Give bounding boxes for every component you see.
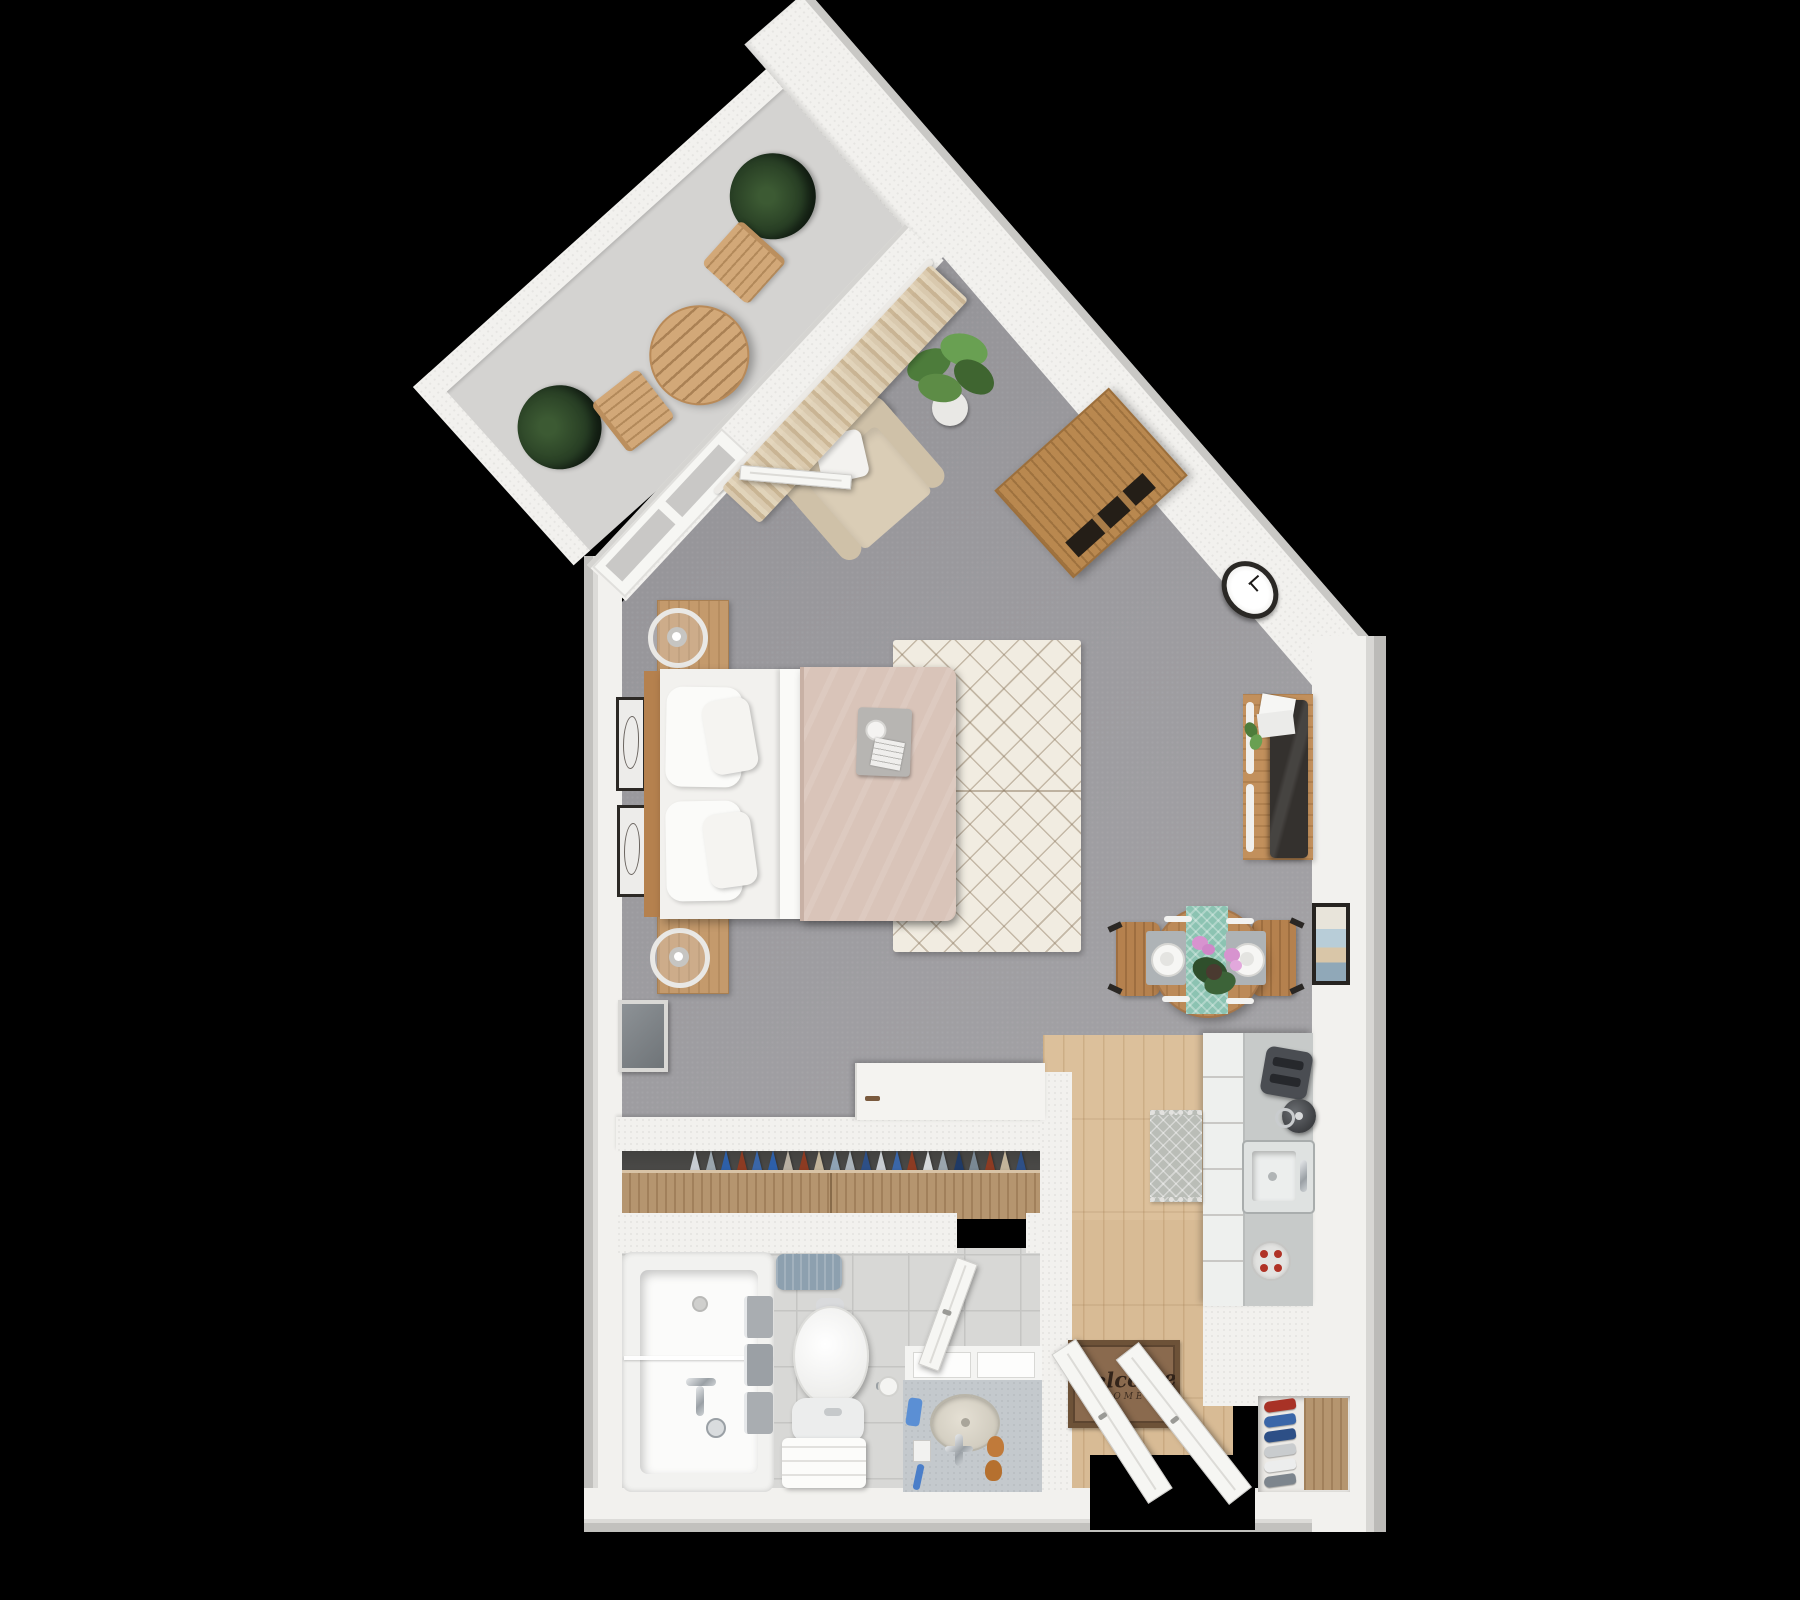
wall-closet-top: [616, 1117, 1043, 1151]
shoe-pair: [1263, 1398, 1296, 1413]
white-dresser: [855, 1063, 1045, 1120]
amber-cup-2: [985, 1460, 1002, 1481]
tub-drain: [692, 1296, 708, 1312]
dresser-handle: [865, 1096, 880, 1101]
vanity: [903, 1346, 1042, 1492]
shoe-shelf: [1304, 1398, 1348, 1490]
closet-dresser: [620, 1170, 1040, 1219]
lamp-bottom-icon: [650, 928, 710, 988]
handheld-shower-icon: [706, 1418, 726, 1438]
toaster-icon: [1259, 1045, 1314, 1100]
toilet-paper-holder-icon: [876, 1372, 898, 1400]
duvet: [800, 667, 956, 921]
shoe-pair: [1263, 1443, 1296, 1458]
toilet: [790, 1296, 866, 1492]
floor-mirror: [618, 1000, 668, 1072]
bed: [644, 669, 952, 919]
counter-drawers: [1203, 1033, 1245, 1306]
toilet-base: [792, 1398, 864, 1442]
wall-hallway-left: [1040, 1072, 1072, 1492]
tub-faucet-icon: [686, 1378, 716, 1386]
orchid-centerpiece-icon: [1186, 930, 1246, 1006]
cooktop-burner-icon: [1251, 1241, 1291, 1281]
shoe-stack: [1264, 1396, 1304, 1496]
wall-art-frame-2: [617, 805, 647, 897]
pillow-small-2: [701, 810, 759, 890]
shoe-pair: [1263, 1473, 1296, 1488]
amber-cup-1: [987, 1436, 1004, 1457]
floor-plan-stage: Welcome HOME: [0, 0, 1800, 1600]
kitchen-runner-mat: [1150, 1110, 1202, 1202]
kitchen-sink: [1242, 1140, 1315, 1214]
wall-kitchen-lower: [1203, 1303, 1313, 1406]
console-plant-icon: [1245, 722, 1263, 752]
kettle-icon: [1282, 1099, 1316, 1133]
shoe-pair: [1263, 1428, 1296, 1443]
gallery-frame: [1312, 903, 1350, 985]
towel-rail: [744, 1296, 772, 1436]
lamp-top-icon: [648, 608, 708, 668]
headboard: [644, 671, 660, 917]
kitchen-counter: [1203, 1033, 1313, 1306]
wall-closet-bottom: [616, 1213, 957, 1253]
bath-mat: [776, 1254, 842, 1290]
toilet-lid: [793, 1306, 869, 1406]
breakfast-tray: [856, 707, 912, 777]
wall-art-frame-1: [616, 697, 646, 791]
shoe-pair: [1263, 1458, 1296, 1473]
shoe-pair: [1263, 1413, 1296, 1428]
shoe-alcove: [1258, 1396, 1350, 1492]
toilet-towel: [782, 1438, 866, 1488]
